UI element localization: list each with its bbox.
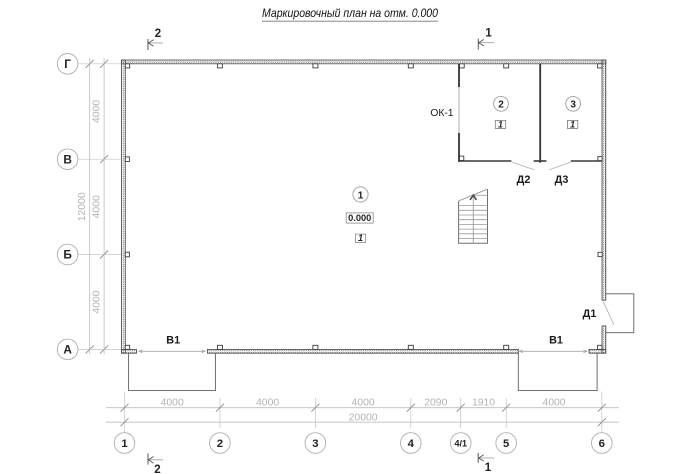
svg-text:Д2: Д2 <box>517 174 531 186</box>
svg-text:4000: 4000 <box>542 398 565 409</box>
svg-text:2: 2 <box>217 438 223 450</box>
svg-text:1: 1 <box>121 438 127 450</box>
svg-text:20000: 20000 <box>349 412 378 423</box>
svg-text:1: 1 <box>358 190 364 201</box>
svg-text:4/1: 4/1 <box>454 439 467 449</box>
svg-text:4000: 4000 <box>161 398 184 409</box>
svg-text:В: В <box>63 152 72 166</box>
svg-text:4000: 4000 <box>256 398 279 409</box>
svg-text:4: 4 <box>408 438 415 450</box>
svg-text:3: 3 <box>312 438 318 450</box>
svg-text:Маркировочный план на отм. 0.0: Маркировочный план на отм. 0.000 <box>262 6 438 20</box>
svg-text:4000: 4000 <box>352 398 375 409</box>
svg-text:2090: 2090 <box>424 398 447 409</box>
svg-text:1910: 1910 <box>472 398 495 409</box>
svg-text:4000: 4000 <box>92 290 103 313</box>
svg-text:Д3: Д3 <box>555 174 569 186</box>
svg-text:ОК-1: ОК-1 <box>430 108 453 119</box>
svg-text:1: 1 <box>358 233 363 243</box>
svg-text:1: 1 <box>498 119 503 129</box>
svg-text:2: 2 <box>155 28 161 40</box>
svg-text:В1: В1 <box>549 335 563 347</box>
svg-text:5: 5 <box>503 438 509 450</box>
svg-text:Г: Г <box>64 57 71 71</box>
svg-text:1: 1 <box>570 119 575 129</box>
svg-text:Б: Б <box>63 248 72 262</box>
svg-text:2: 2 <box>154 464 160 474</box>
svg-text:2: 2 <box>498 100 504 111</box>
svg-text:1: 1 <box>485 462 492 474</box>
svg-text:3: 3 <box>570 100 576 111</box>
svg-text:В1: В1 <box>166 335 180 347</box>
svg-text:4000: 4000 <box>92 100 103 123</box>
svg-text:1: 1 <box>485 28 492 40</box>
svg-text:6: 6 <box>599 438 605 450</box>
svg-text:А: А <box>63 343 72 357</box>
svg-text:Д1: Д1 <box>583 308 597 320</box>
svg-text:12000: 12000 <box>77 192 88 221</box>
svg-text:4000: 4000 <box>92 195 103 218</box>
svg-text:0.000: 0.000 <box>348 213 371 223</box>
